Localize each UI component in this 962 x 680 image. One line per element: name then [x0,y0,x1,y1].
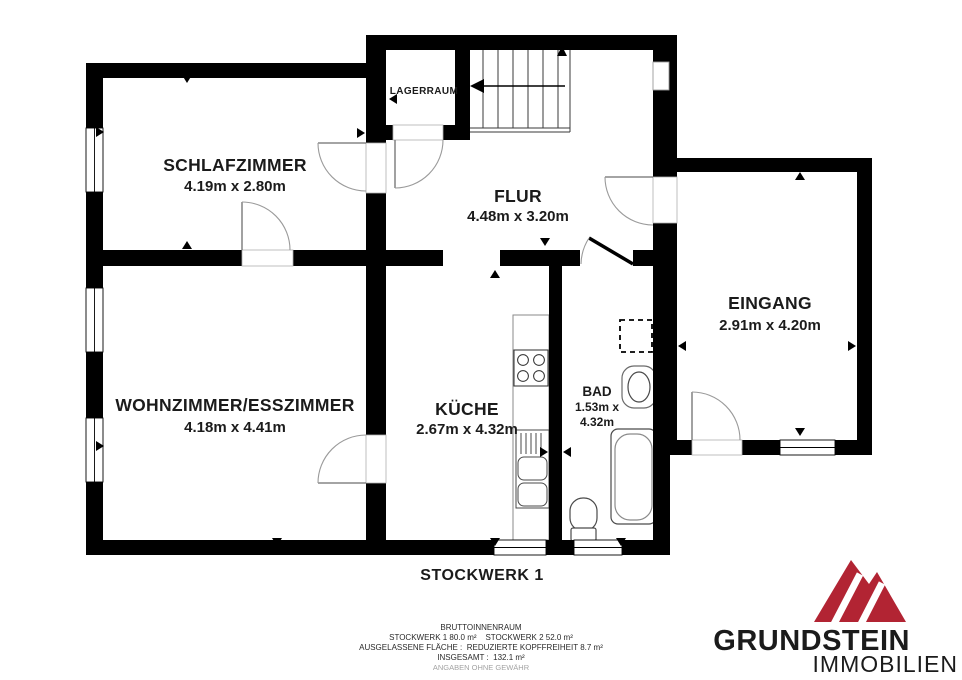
stove-icon [514,350,548,386]
door-lagerraum [395,140,443,188]
door-wohnzimmer-kueche [318,435,366,483]
toilet-icon [570,498,597,541]
kitchen-sink-icon [516,430,549,508]
company-logo: GRUNDSTEIN IMMOBILIEN [713,560,958,677]
door-schlafzimmer [318,143,366,191]
label-flur: FLUR [494,186,542,206]
window-wohnzimmer-1 [86,288,103,352]
area-summary: BRUTTOINNENRAUM STOCKWERK 1 80.0 m² STOC… [359,623,603,672]
mountain-logo-icon [814,560,906,624]
label-schlafzimmer: SCHLAFZIMMER [163,155,307,175]
summary-line-3: AUSGELASSENE FLÄCHE : REDUZIERTE KOPFFRE… [359,643,603,652]
label-kueche: KÜCHE [435,399,499,419]
door-schlaf-wohnzimmer [242,202,290,250]
dims-kueche: 2.67m x 4.32m [416,421,518,438]
washing-machine-icon [620,320,652,352]
door-flur-eingang [605,177,653,225]
window-wohnzimmer-2 [86,418,103,482]
floorplan-canvas: SCHLAFZIMMER 4.19m x 2.80m FLUR 4.48m x … [0,0,962,680]
window-schlafzimmer [86,128,103,192]
bathtub-icon [611,429,656,524]
logo-subtitle: IMMOBILIEN [813,651,958,677]
label-eingang: EINGANG [728,293,812,313]
wall-niche-flur [653,62,669,90]
stairs-direction-arrow [470,46,567,93]
summary-line-2: STOCKWERK 1 80.0 m² STOCKWERK 2 52.0 m² [389,633,573,642]
label-bad: BAD [582,384,611,399]
summary-line-4: INSGESAMT : 132.1 m² [437,653,525,662]
floor-label: STOCKWERK 1 [420,567,543,584]
label-wohnzimmer: WOHNZIMMER/ESSZIMMER [115,395,354,415]
dims-eingang: 2.91m x 4.20m [719,317,821,334]
dims-flur: 4.48m x 3.20m [467,208,569,225]
window-bad [574,540,622,555]
label-lagerraum: LAGERRAUM [390,86,459,97]
door-eingang-entry [692,392,740,440]
dims-bad-1: 1.53m x [575,400,619,414]
bathroom-sink-icon [622,366,656,408]
bathroom-fixtures [570,320,656,541]
dims-bad-2: 4.32m [580,415,614,429]
summary-disclaimer: ANGABEN OHNE GEWÄHR [433,663,530,672]
window-kueche [494,540,546,555]
dims-wohnzimmer: 4.18m x 4.41m [184,419,286,436]
floorplan-page: SCHLAFZIMMER 4.19m x 2.80m FLUR 4.48m x … [0,0,962,680]
window-eingang [780,440,835,455]
staircase [468,46,570,132]
dims-schlafzimmer: 4.19m x 2.80m [184,178,286,195]
kitchen-counter [513,315,549,540]
summary-line-1: BRUTTOINNENRAUM [440,623,522,632]
